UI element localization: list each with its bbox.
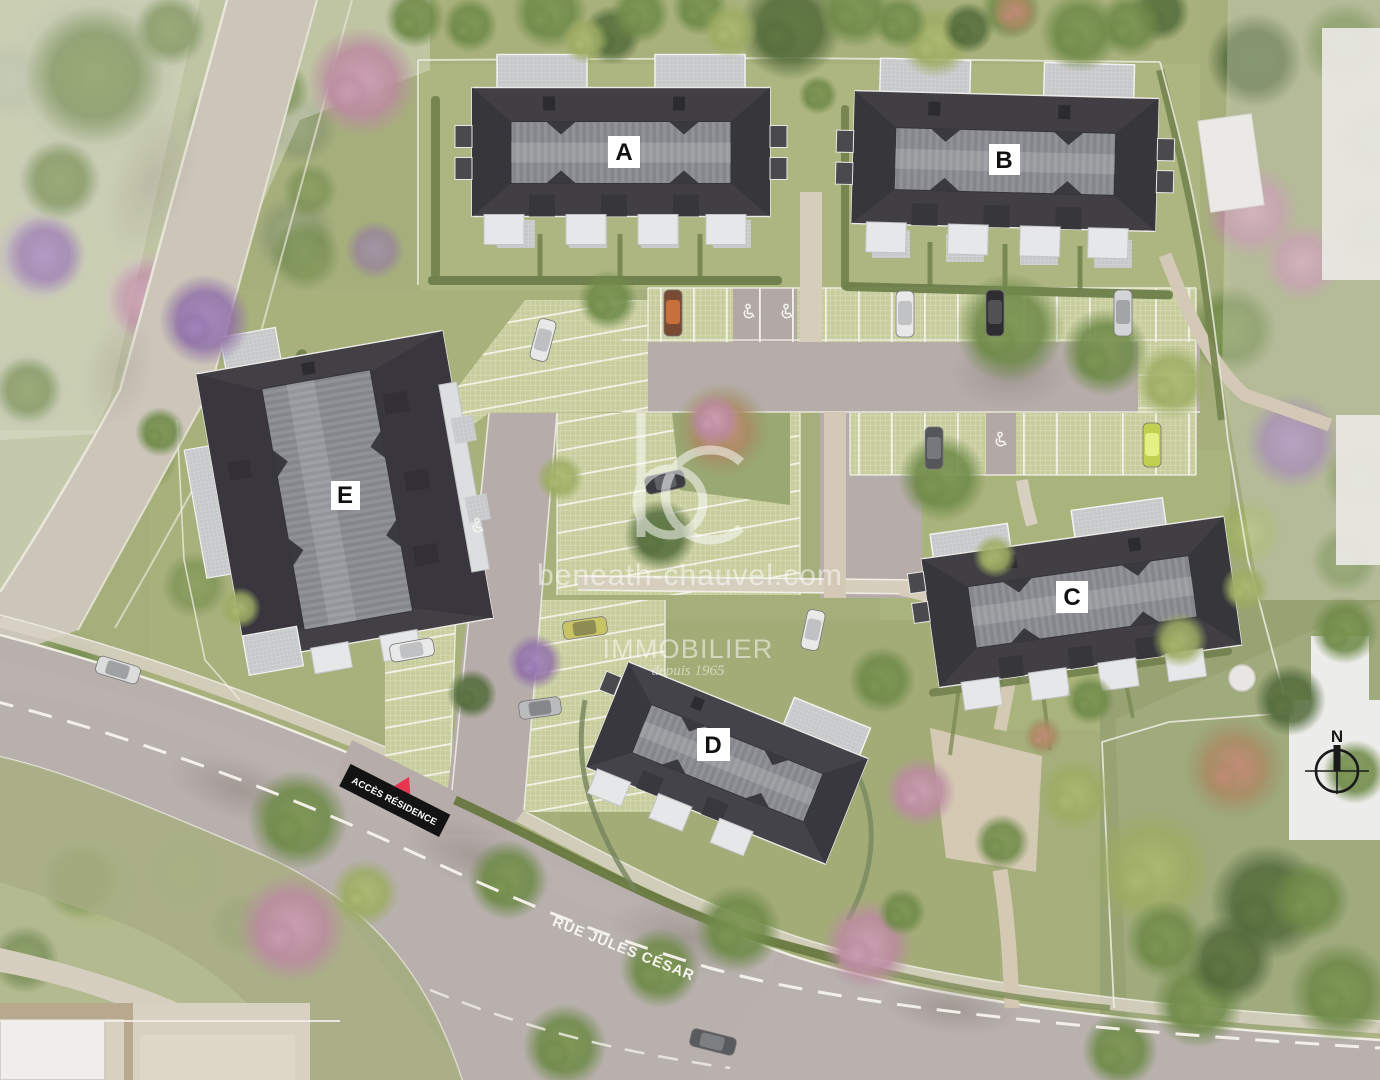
svg-text:D: D	[704, 732, 721, 759]
svg-text:C: C	[1063, 584, 1080, 611]
svg-text:depuis 1965: depuis 1965	[652, 663, 725, 679]
svg-text:E: E	[337, 482, 353, 509]
svg-text:B: B	[995, 147, 1012, 174]
svg-text:A: A	[615, 139, 632, 166]
svg-text:N: N	[1331, 727, 1343, 746]
svg-text:beneath-chauvel.com: beneath-chauvel.com	[537, 559, 843, 592]
svg-text:IMMOBILIER: IMMOBILIER	[602, 634, 773, 664]
